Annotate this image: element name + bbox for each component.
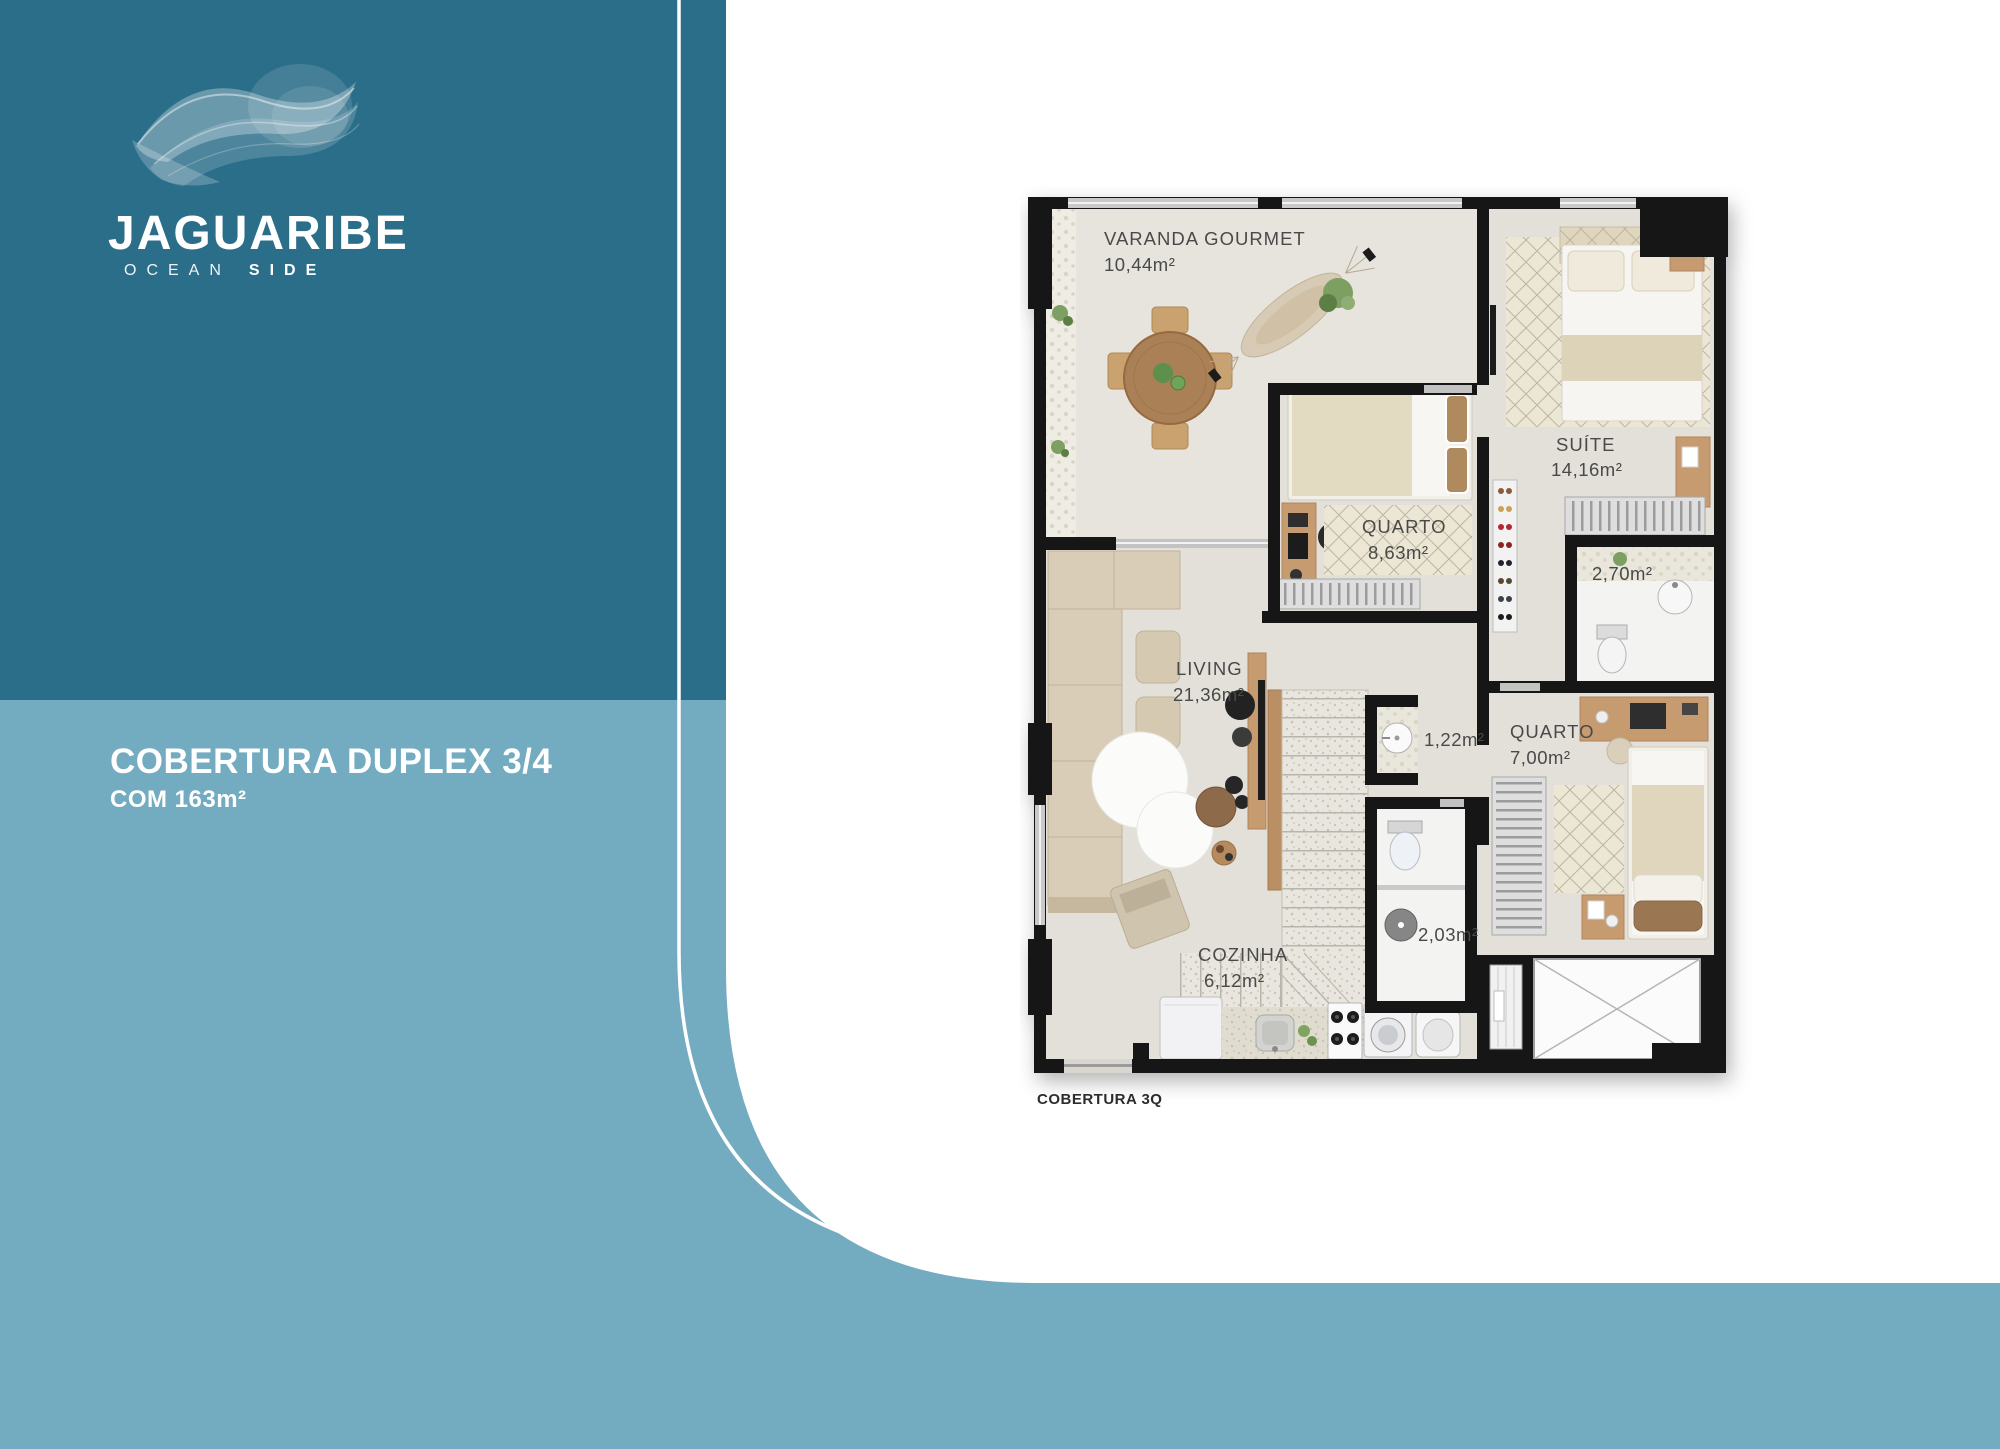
brand-name: JAGUARIBE <box>108 206 409 261</box>
label-suite-name: SUÍTE <box>1556 434 1615 455</box>
label-living-area: 21,36m² <box>1173 684 1244 705</box>
dark-teal-panel <box>0 0 726 700</box>
label-quarto2-area: 7,00m² <box>1510 747 1571 768</box>
label-varanda-name: VARANDA GOURMET <box>1104 228 1306 249</box>
rug <box>1554 785 1624 893</box>
tagline-side: SIDE <box>249 262 326 280</box>
bed <box>1628 747 1708 939</box>
label-suite-area: 14,16m² <box>1551 459 1622 480</box>
label-banheiro-suite-area: 2,70m² <box>1592 563 1653 584</box>
label-quarto1-area: 8,63m² <box>1368 542 1429 563</box>
closet-rail <box>1492 777 1546 935</box>
toilet <box>1597 625 1627 673</box>
laundry-tank <box>1416 1011 1460 1057</box>
plan-title: COBERTURA DUPLEX 3/4 <box>110 742 552 782</box>
label-lavabo-area: 1,22m² <box>1424 729 1485 750</box>
brochure-page: JAGUARIBE OCEAN SIDE COBERTURA DUPLEX 3/… <box>0 0 2000 1449</box>
sink <box>1385 909 1417 941</box>
wave-logo-icon <box>128 44 363 209</box>
plan-caption: COBERTURA 3Q <box>1037 1091 1162 1108</box>
label-living-name: LIVING <box>1176 658 1243 679</box>
plan-subtitle: COM 163m² <box>110 786 247 814</box>
floor-plan: VARANDA GOURMET 10,44m² QUARTO 8,63m² SU… <box>1020 185 1760 1135</box>
nightstand <box>1582 895 1624 939</box>
label-varanda-area: 10,44m² <box>1104 254 1175 275</box>
toilet <box>1388 821 1422 870</box>
shoe-rack <box>1493 480 1517 632</box>
pouf <box>1136 631 1180 683</box>
stove <box>1328 1003 1362 1059</box>
wardrobe-rail <box>1272 579 1420 609</box>
counter-sink <box>1222 1007 1328 1059</box>
label-banheiro-area: 2,03m² <box>1418 924 1479 945</box>
fridge <box>1160 997 1222 1059</box>
room-lavabo <box>1377 707 1418 773</box>
bed <box>1288 388 1472 500</box>
label-cozinha-area: 6,12m² <box>1204 970 1265 991</box>
room-banheiro <box>1377 809 1471 1001</box>
closet-rail <box>1565 497 1705 535</box>
label-quarto1-name: QUARTO <box>1362 516 1446 537</box>
tv <box>1490 305 1496 375</box>
label-cozinha-name: COZINHA <box>1198 944 1288 965</box>
tagline-ocean: OCEAN <box>124 262 231 280</box>
label-quarto2-name: QUARTO <box>1510 721 1594 742</box>
brand-tagline: OCEAN SIDE <box>124 262 326 280</box>
